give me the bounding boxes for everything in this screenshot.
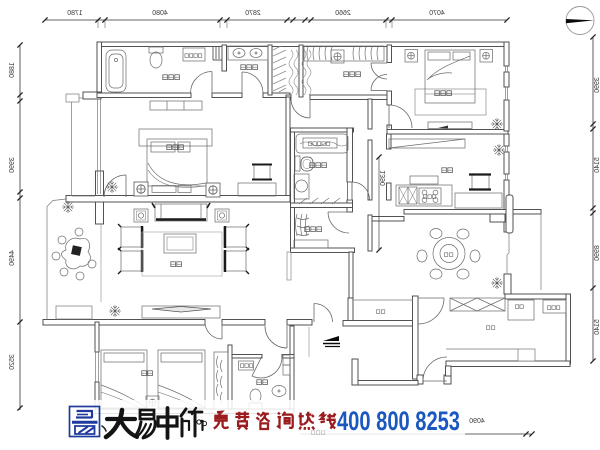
- svg-text:4490: 4490: [9, 250, 16, 266]
- svg-text:3990: 3990: [594, 77, 600, 93]
- svg-text:1390: 1390: [380, 170, 387, 186]
- svg-text:4070: 4070: [429, 10, 445, 17]
- svg-text:8990: 8990: [594, 245, 600, 261]
- svg-text:5140: 5140: [594, 157, 600, 173]
- svg-text:1880: 1880: [9, 62, 16, 78]
- svg-text:1780: 1780: [67, 10, 83, 17]
- svg-text:3990: 3990: [9, 157, 16, 173]
- svg-text:5140: 5140: [594, 319, 600, 335]
- svg-text:4080: 4080: [152, 10, 168, 17]
- svg-text:400 800 8253: 400 800 8253: [337, 406, 460, 436]
- svg-text:2660: 2660: [335, 10, 351, 17]
- svg-text:2870: 2870: [245, 10, 261, 17]
- svg-text:3520: 3520: [9, 354, 16, 370]
- svg-text:4090: 4090: [469, 418, 485, 425]
